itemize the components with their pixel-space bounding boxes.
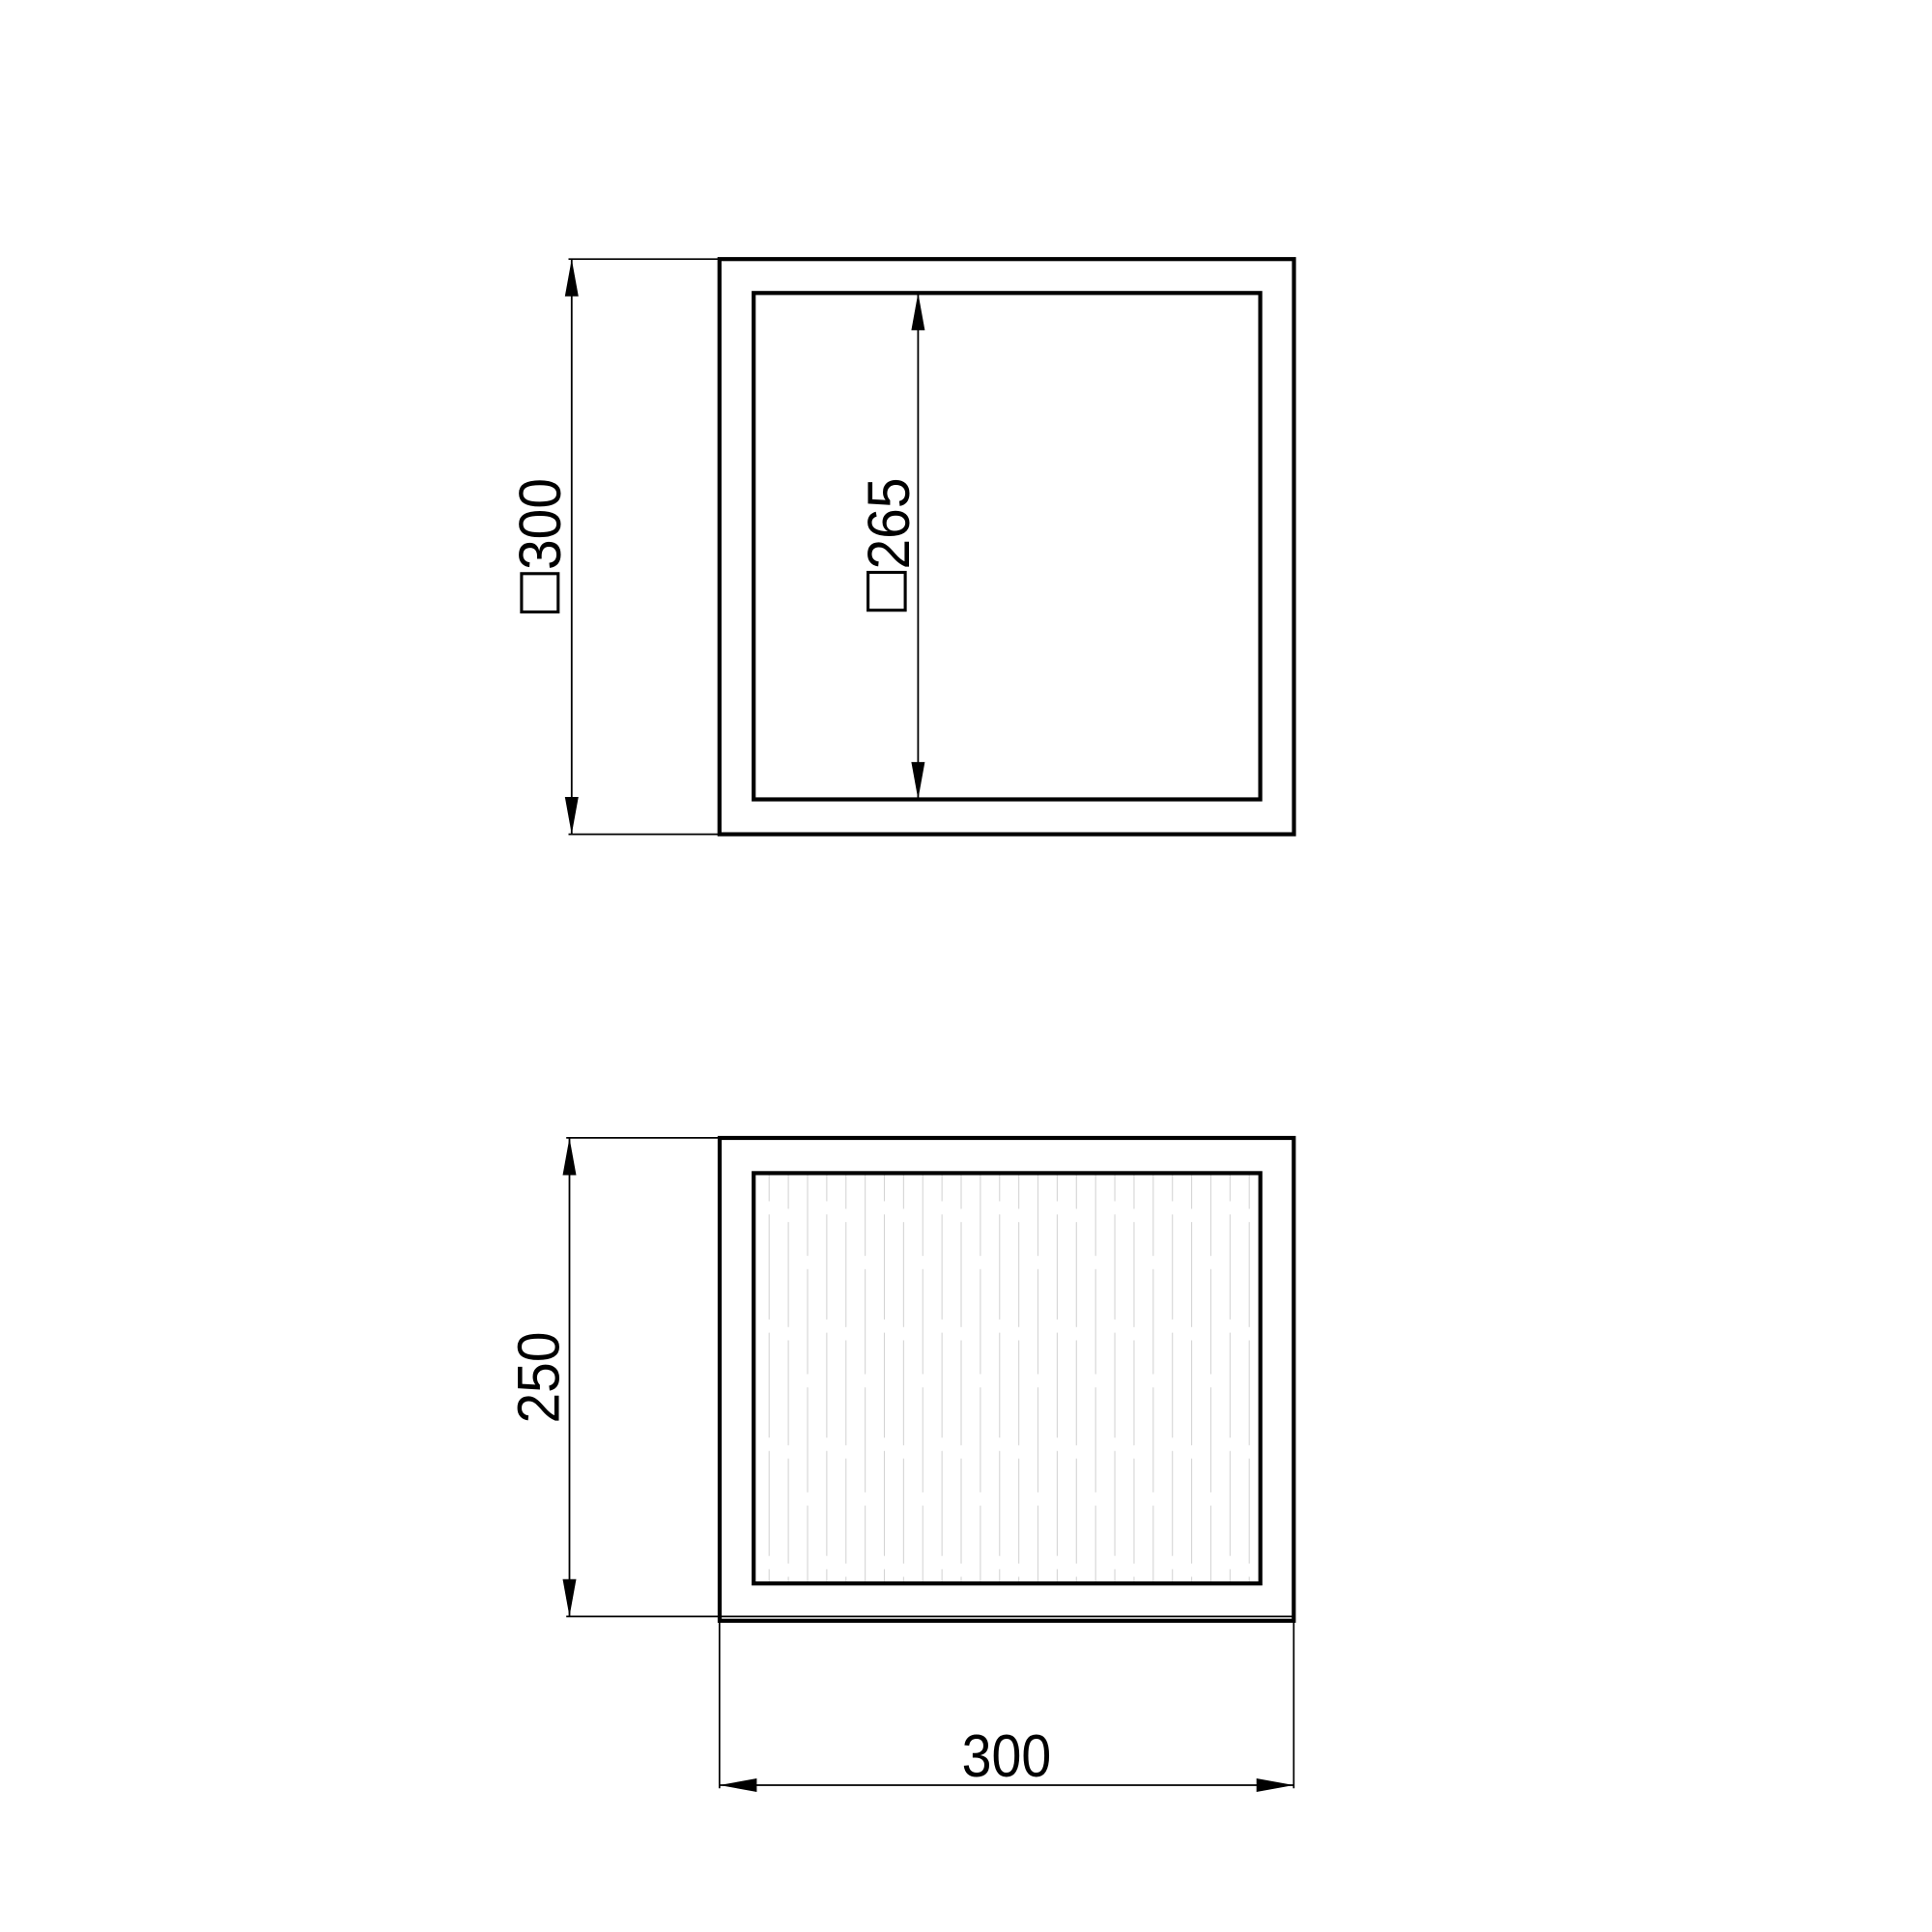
svg-text:300: 300	[507, 478, 573, 570]
svg-text:300: 300	[962, 1722, 1051, 1790]
svg-text:250: 250	[506, 1332, 572, 1424]
svg-text:265: 265	[856, 478, 922, 570]
